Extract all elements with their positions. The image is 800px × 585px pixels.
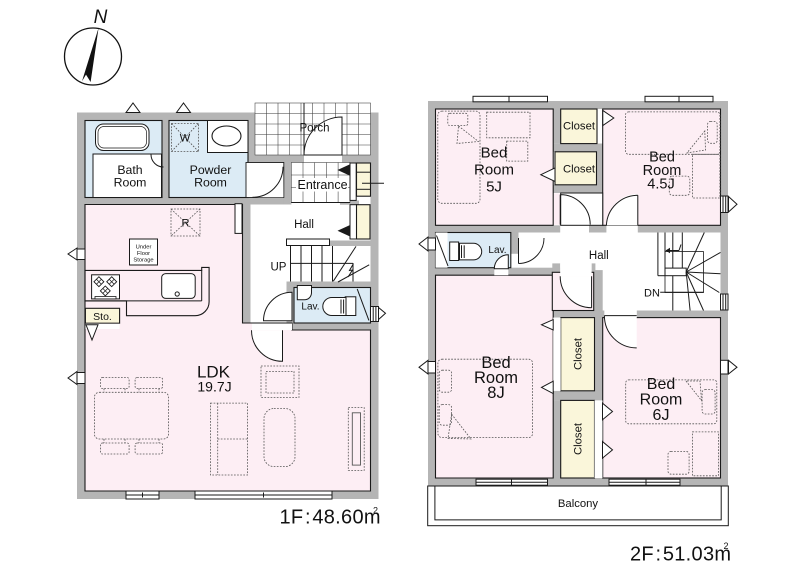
svg-text:Lav.: Lav. (488, 245, 506, 256)
svg-text:W: W (180, 133, 191, 145)
svg-text:Storage: Storage (133, 258, 153, 264)
svg-text:Room: Room (640, 392, 683, 409)
svg-text:Under: Under (136, 245, 152, 251)
svg-text:Closet: Closet (563, 121, 596, 133)
svg-text:Lav.: Lav. (301, 302, 319, 313)
svg-text:UP: UP (271, 262, 287, 274)
svg-text:Hall: Hall (589, 250, 609, 262)
svg-text:5J: 5J (486, 178, 502, 195)
svg-text:19.7J: 19.7J (197, 379, 231, 395)
svg-text:1F:48.60m: 1F:48.60m (280, 507, 381, 529)
svg-text:Room: Room (194, 176, 227, 190)
svg-text:Porch: Porch (299, 123, 329, 135)
svg-text:Closet: Closet (563, 164, 596, 176)
svg-text:6J: 6J (653, 407, 670, 424)
svg-text:Balcony: Balcony (558, 498, 599, 510)
svg-text:2F:51.03m: 2F:51.03m (630, 544, 731, 566)
svg-text:R: R (182, 218, 190, 230)
svg-text:Hall: Hall (294, 219, 314, 231)
svg-text:Sto.: Sto. (93, 311, 112, 323)
svg-text:DN: DN (644, 288, 660, 300)
svg-text:Closet: Closet (573, 337, 585, 370)
svg-text:Entrance: Entrance (297, 178, 347, 192)
svg-text:Bed: Bed (481, 145, 508, 162)
svg-text:N: N (94, 7, 108, 28)
svg-text:2: 2 (373, 506, 378, 516)
svg-text:Bed: Bed (647, 376, 675, 393)
svg-text:8J: 8J (487, 384, 504, 402)
svg-text:Floor: Floor (137, 251, 150, 257)
svg-text:4.5J: 4.5J (647, 177, 674, 193)
svg-text:2: 2 (724, 541, 729, 551)
svg-text:Room: Room (474, 162, 514, 179)
svg-text:Room: Room (114, 176, 147, 190)
svg-text:Closet: Closet (573, 422, 585, 455)
